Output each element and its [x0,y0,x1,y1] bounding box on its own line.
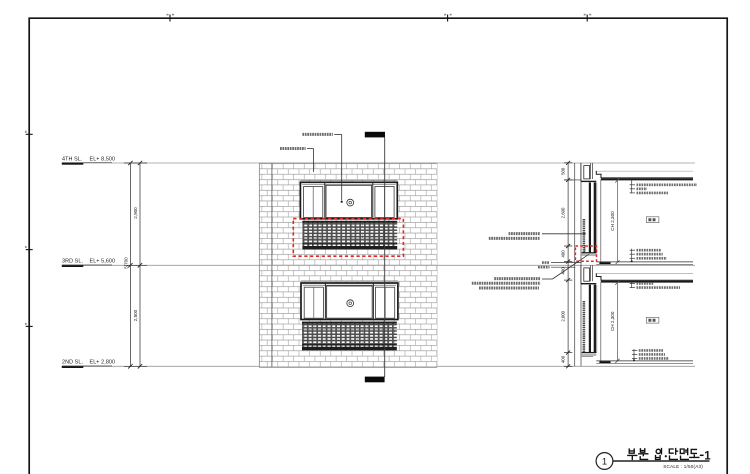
svg-text:400: 400 [560,250,565,258]
svg-text:2,000: 2,000 [560,310,565,321]
svg-text:EL+ 2,800: EL+ 2,800 [90,360,116,366]
svg-text:1: 1 [704,451,711,463]
svg-text:CH 2,300: CH 2,300 [610,211,615,231]
svg-text:EL+ 8,500: EL+ 8,500 [90,156,116,162]
svg-text:400: 400 [560,355,565,363]
svg-text:CH 2,300: CH 2,300 [610,311,615,331]
svg-text:500: 500 [560,167,565,175]
svg-text:2,800: 2,800 [133,309,138,321]
svg-text:SCALE : 1/50(A3): SCALE : 1/50(A3) [663,464,703,469]
svg-text:1: 1 [602,456,607,467]
svg-text:2ND SL.: 2ND SL. [62,360,83,366]
svg-text:EL+ 5,600: EL+ 5,600 [90,259,116,265]
svg-text:4TH SL.: 4TH SL. [62,156,82,162]
svg-text:2,600: 2,600 [560,207,565,218]
svg-text:2,900: 2,900 [133,207,138,219]
svg-text:3RD SL.: 3RD SL. [62,259,83,265]
svg-text:5,700: 5,700 [124,257,129,269]
